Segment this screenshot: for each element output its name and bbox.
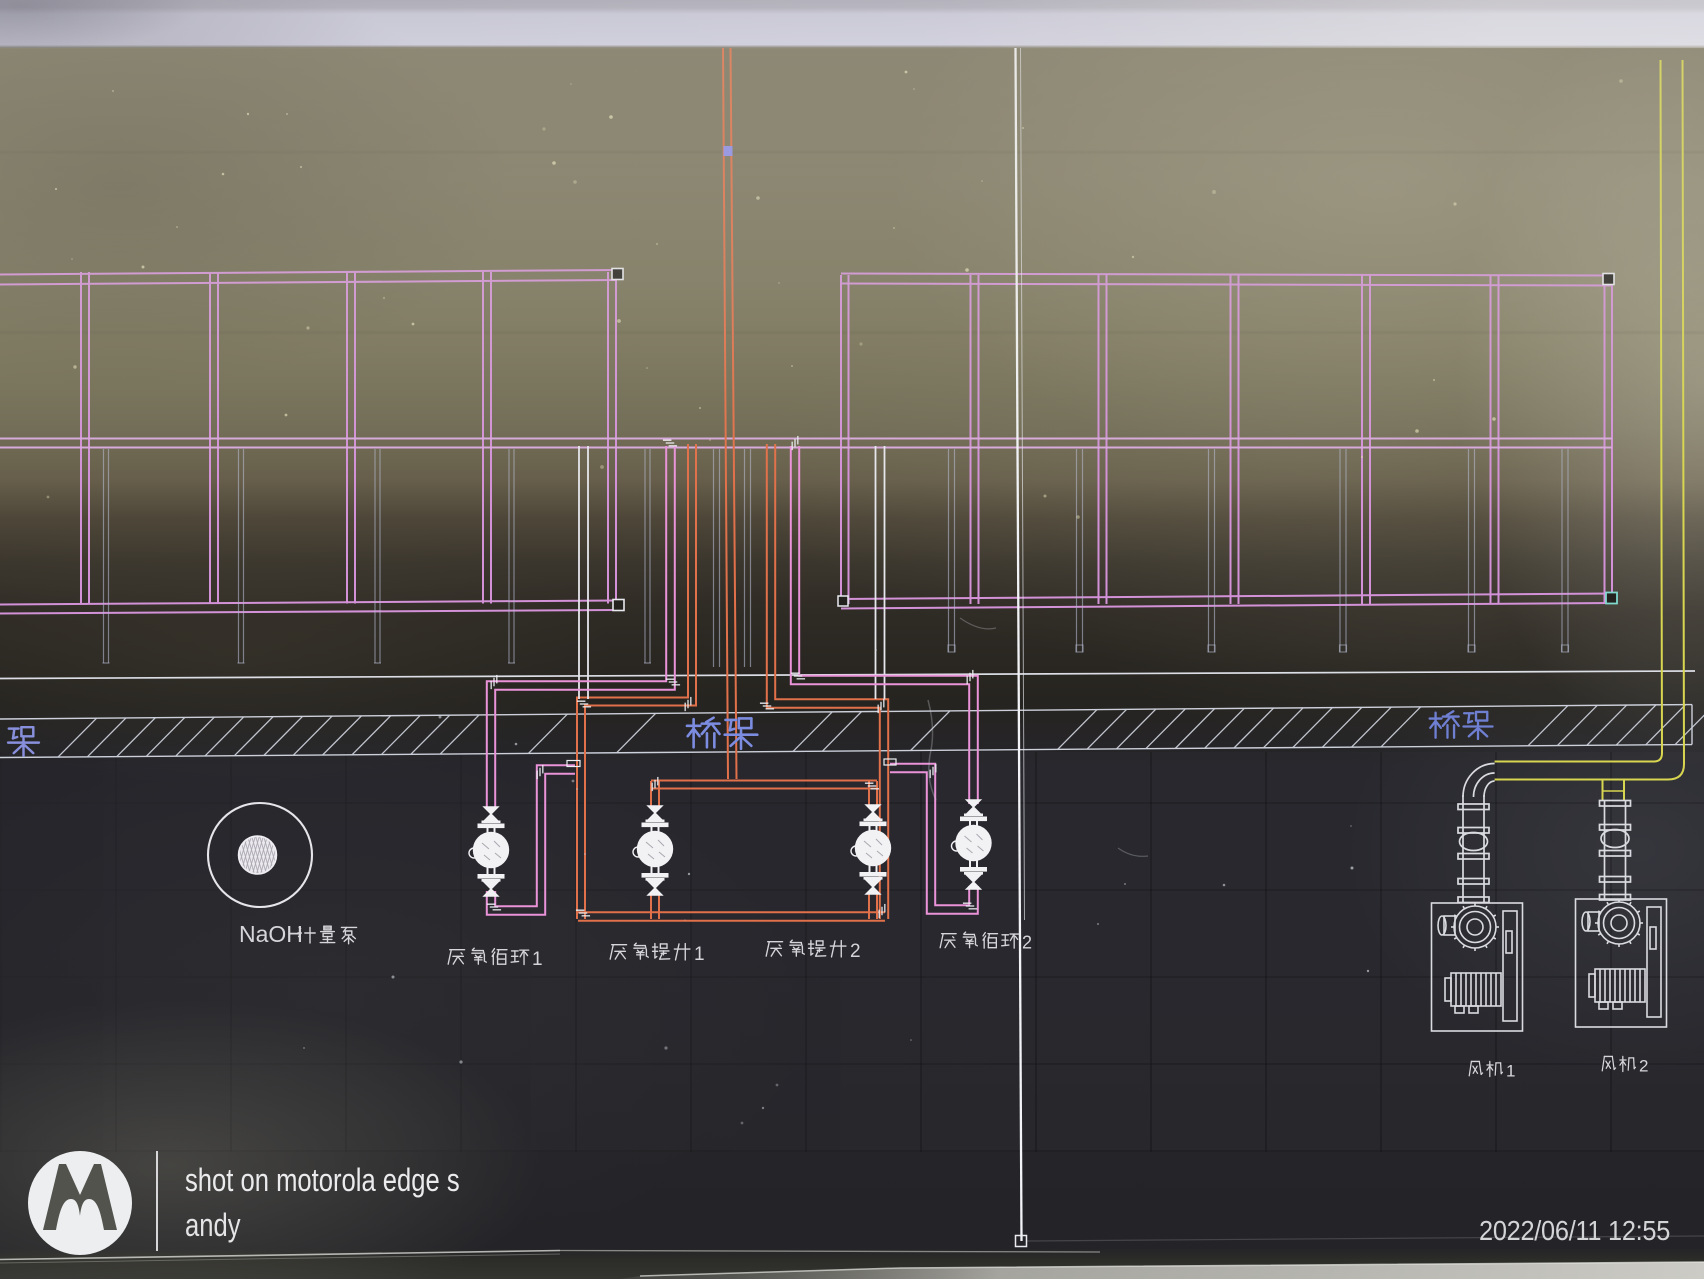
svg-text:1: 1 [1506, 1062, 1515, 1081]
svg-text:NaOH: NaOH [239, 921, 303, 947]
svg-text:2: 2 [1639, 1057, 1648, 1076]
svg-text:1: 1 [694, 944, 705, 965]
svg-text:2: 2 [850, 941, 861, 962]
svg-text:2: 2 [1022, 933, 1032, 953]
svg-text:1: 1 [532, 949, 543, 970]
